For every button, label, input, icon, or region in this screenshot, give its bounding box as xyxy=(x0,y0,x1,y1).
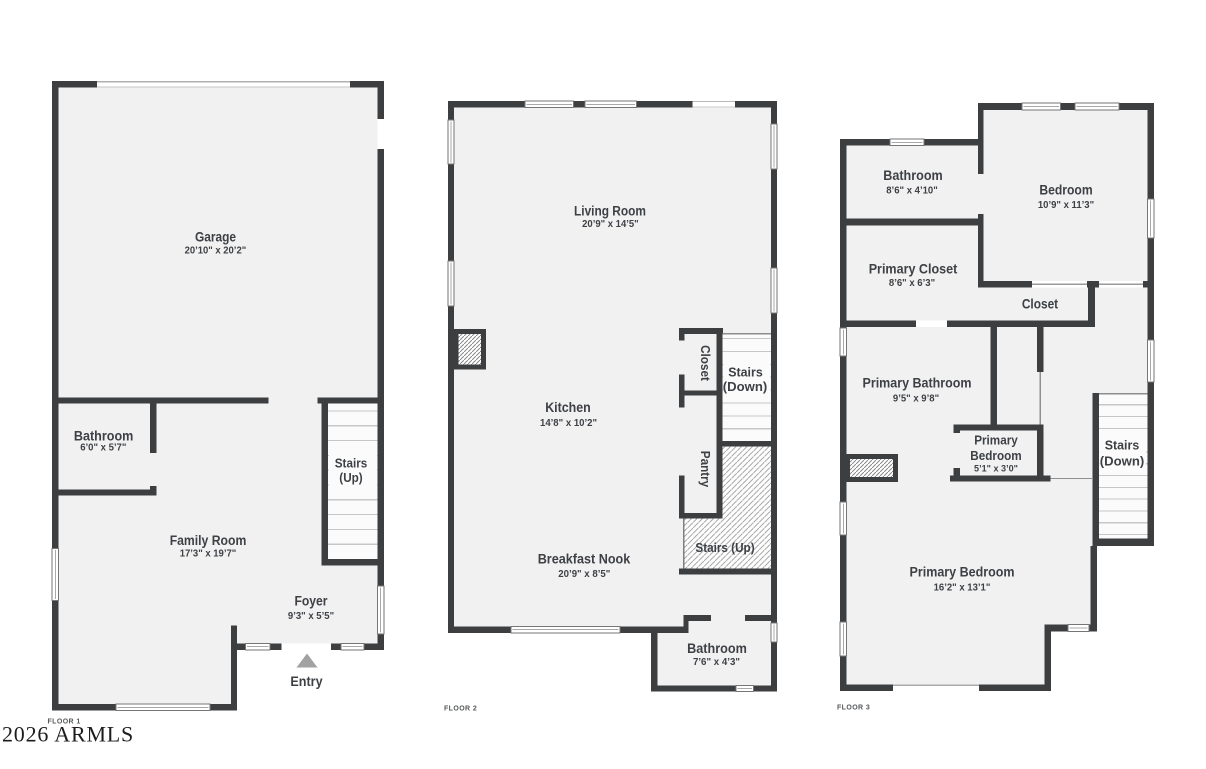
svg-text:Bathroom: Bathroom xyxy=(74,429,134,444)
svg-text:20’10" x 20’2": 20’10" x 20’2" xyxy=(185,246,247,257)
svg-text:5’1" x 3’0": 5’1" x 3’0" xyxy=(974,464,1018,475)
svg-text:8’6" x 6’3": 8’6" x 6’3" xyxy=(889,278,935,289)
svg-text:Kitchen: Kitchen xyxy=(545,400,591,415)
svg-text:(Down): (Down) xyxy=(723,379,768,394)
svg-text:7’6" x 4’3": 7’6" x 4’3" xyxy=(693,657,740,668)
svg-text:2026 ARMLS: 2026 ARMLS xyxy=(2,722,134,747)
svg-text:(Up): (Up) xyxy=(339,470,362,485)
svg-text:6’0" x 5’7": 6’0" x 5’7" xyxy=(80,443,126,454)
svg-text:9’5" x 9’8": 9’5" x 9’8" xyxy=(893,394,939,405)
svg-text:Closet: Closet xyxy=(1022,297,1059,312)
svg-text:20’9" x 14’5": 20’9" x 14’5" xyxy=(582,219,639,230)
svg-text:Stairs: Stairs xyxy=(1105,438,1140,453)
svg-text:Pantry: Pantry xyxy=(698,451,713,488)
svg-text:Primary Bedroom: Primary Bedroom xyxy=(910,565,1015,580)
svg-text:FLOOR 2: FLOOR 2 xyxy=(444,706,477,713)
svg-text:Family Room: Family Room xyxy=(170,533,247,548)
svg-text:8’6" x 4’10": 8’6" x 4’10" xyxy=(886,186,938,197)
svg-text:FLOOR 3: FLOOR 3 xyxy=(837,705,870,712)
svg-text:Stairs: Stairs xyxy=(335,456,368,471)
svg-text:Primary Closet: Primary Closet xyxy=(869,262,958,277)
svg-text:Stairs: Stairs xyxy=(728,365,763,380)
svg-text:(Down): (Down) xyxy=(1100,454,1145,469)
svg-text:16’2" x 13’1": 16’2" x 13’1" xyxy=(934,583,991,594)
svg-text:Foyer: Foyer xyxy=(294,594,328,609)
svg-text:17’3" x 19’7": 17’3" x 19’7" xyxy=(180,549,237,560)
svg-text:Primary Bathroom: Primary Bathroom xyxy=(863,376,972,391)
svg-text:Bedroom: Bedroom xyxy=(1039,183,1092,198)
svg-text:Garage: Garage xyxy=(195,230,237,245)
svg-text:Bedroom: Bedroom xyxy=(970,448,1021,463)
svg-text:20’9" x 8’5": 20’9" x 8’5" xyxy=(558,569,610,580)
svg-text:14’8" x 10’2": 14’8" x 10’2" xyxy=(540,418,597,429)
svg-text:Bathroom: Bathroom xyxy=(687,641,747,656)
svg-text:Breakfast Nook: Breakfast Nook xyxy=(538,551,631,566)
svg-text:Stairs (Up): Stairs (Up) xyxy=(695,540,754,555)
svg-text:9’3" x 5’5": 9’3" x 5’5" xyxy=(288,611,334,622)
svg-text:10’9" x 11’3": 10’9" x 11’3" xyxy=(1038,200,1095,211)
svg-text:Closet: Closet xyxy=(698,345,713,381)
svg-text:Living Room: Living Room xyxy=(574,204,646,219)
svg-text:Primary: Primary xyxy=(974,433,1018,448)
svg-text:Entry: Entry xyxy=(290,674,322,689)
svg-text:Bathroom: Bathroom xyxy=(883,168,943,183)
